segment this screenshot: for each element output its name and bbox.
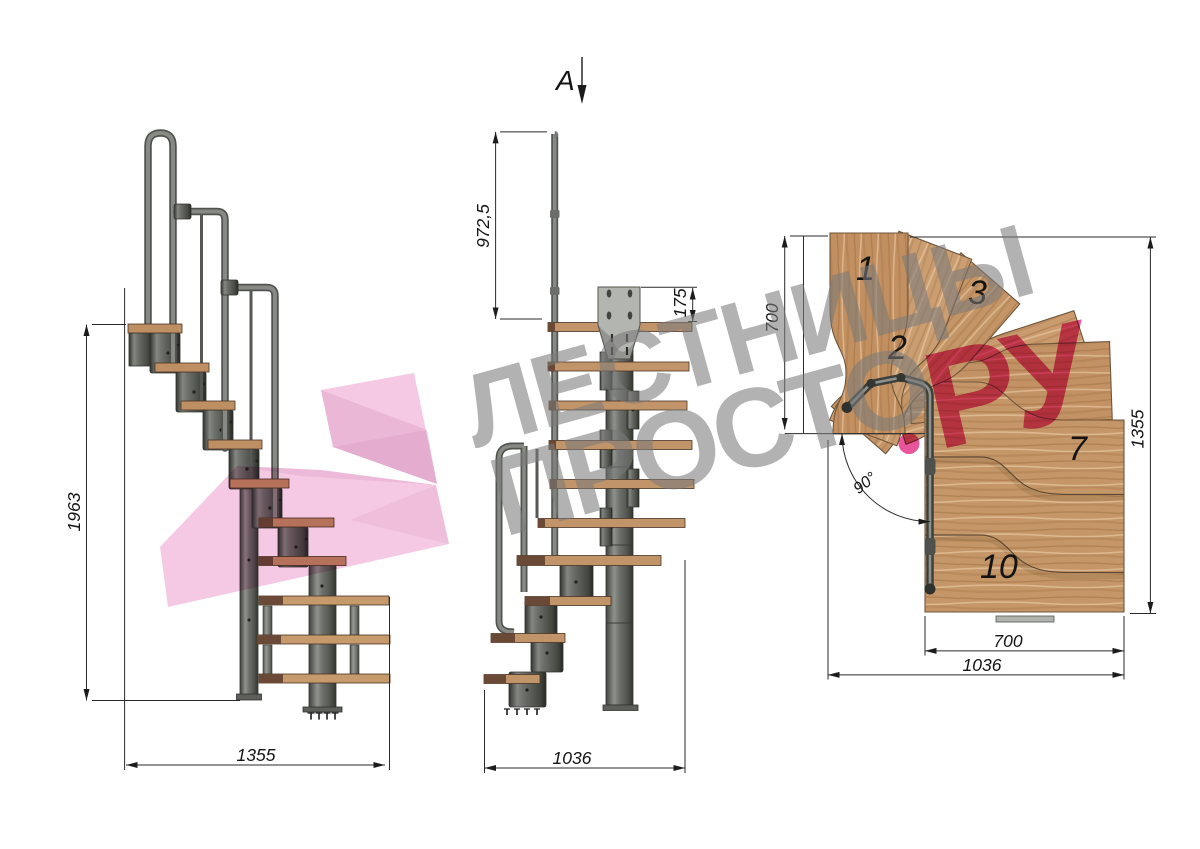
svg-text:1355: 1355 (237, 745, 276, 765)
svg-text:1963: 1963 (64, 492, 84, 531)
svg-text:1355: 1355 (1128, 409, 1148, 448)
svg-text:700: 700 (993, 631, 1022, 651)
svg-text:10: 10 (980, 548, 1018, 586)
svg-text:A: A (554, 65, 575, 96)
svg-text:1036: 1036 (553, 748, 592, 768)
svg-text:972,5: 972,5 (473, 204, 493, 248)
svg-text:90°: 90° (850, 469, 880, 498)
svg-text:1036: 1036 (963, 655, 1002, 675)
